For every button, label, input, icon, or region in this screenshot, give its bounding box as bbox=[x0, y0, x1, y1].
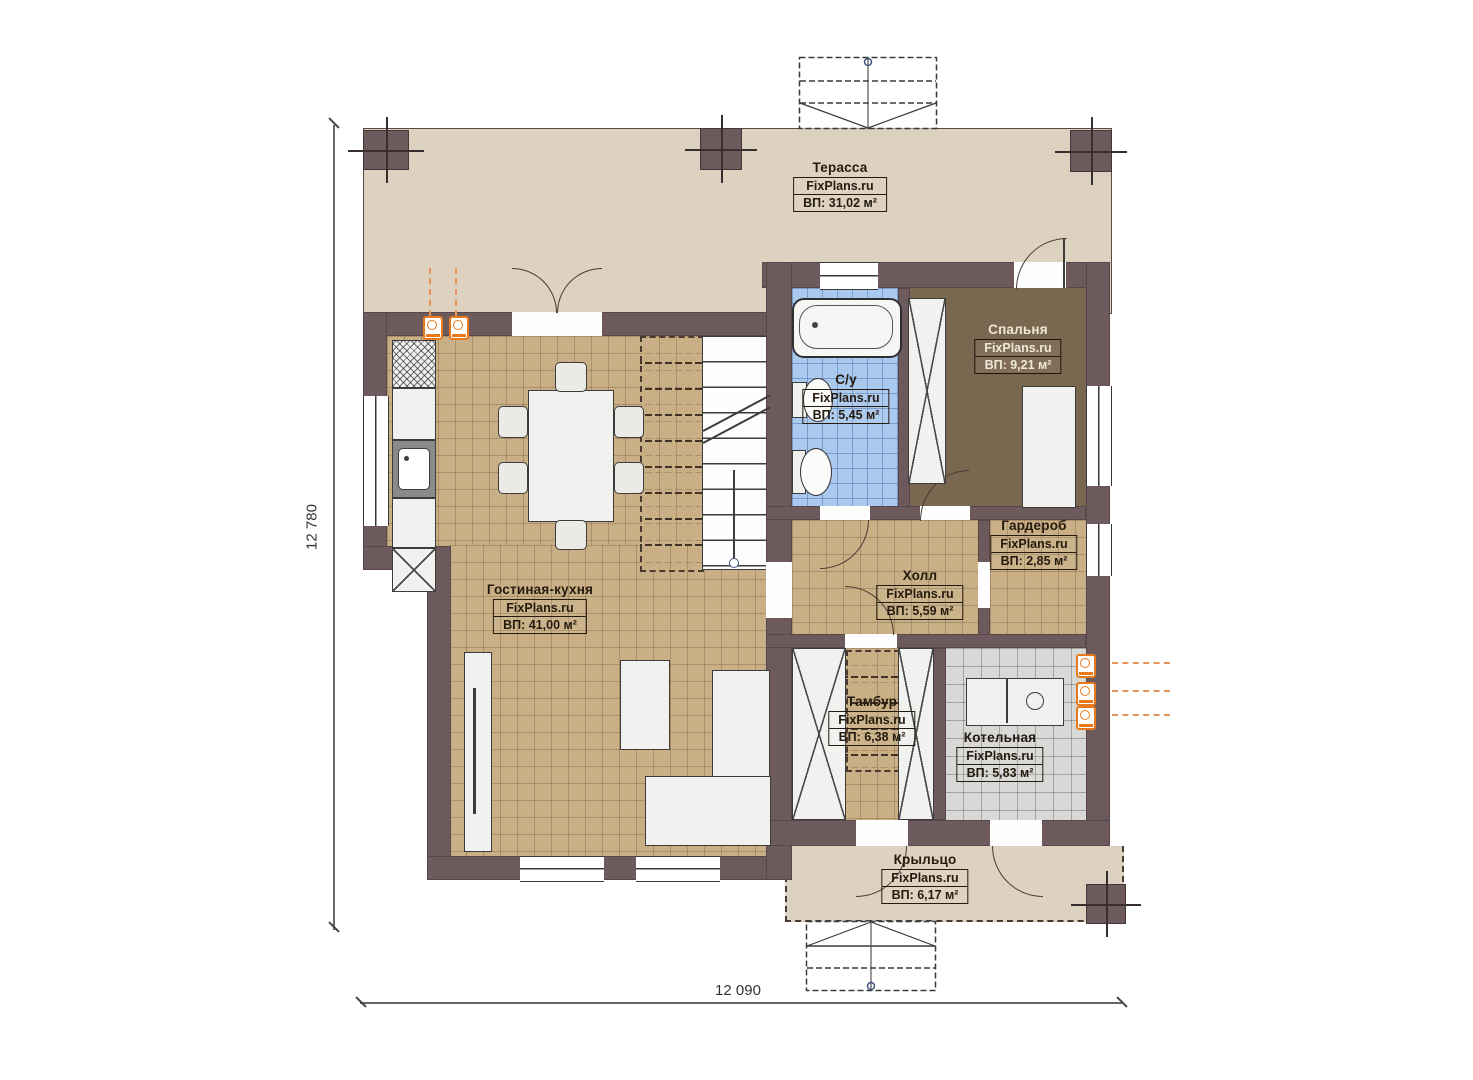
light-base bbox=[426, 334, 440, 337]
wall-vestibule-boiler bbox=[932, 648, 946, 820]
door-leaf-terrace-right bbox=[1063, 238, 1065, 288]
room-label-terrace: Терасса FixPlans.ru ВП: 31,02 м² bbox=[793, 160, 887, 212]
pipe-lead-3 bbox=[1112, 714, 1170, 716]
stair-lower-flight bbox=[702, 336, 768, 570]
pillar-axis-v bbox=[1106, 871, 1108, 937]
room-label-hall: Холл FixPlans.ru ВП: 5,59 м² bbox=[876, 568, 963, 620]
light-base bbox=[452, 334, 466, 337]
dimension-line-bottom bbox=[360, 1002, 1122, 1004]
pillar-axis-v bbox=[721, 115, 723, 183]
pillar-porch bbox=[1086, 884, 1126, 924]
room-area: ВП: 6,38 м² bbox=[829, 728, 914, 745]
window-bedroom-right bbox=[1086, 386, 1112, 486]
room-name: Терасса bbox=[793, 160, 887, 175]
room-label-porch: Крыльцо FixPlans.ru ВП: 6,17 м² bbox=[881, 852, 968, 904]
window-living-bottom-1 bbox=[520, 856, 604, 882]
boiler-divider bbox=[1006, 679, 1008, 723]
terrace-entry-stairs bbox=[798, 56, 938, 130]
window-bathroom-top bbox=[820, 262, 878, 290]
room-area: ВП: 5,59 м² bbox=[877, 602, 962, 619]
room-name: Гостиная-кухня bbox=[487, 582, 593, 597]
room-label-boiler: Котельная FixPlans.ru ВП: 5,83 м² bbox=[956, 730, 1043, 782]
bath-sink bbox=[800, 448, 832, 496]
room-name: Холл bbox=[876, 568, 963, 583]
pipe-circle-icon bbox=[1080, 658, 1090, 668]
room-name: Крыльцо bbox=[881, 852, 968, 867]
kitchen-sink bbox=[398, 448, 430, 490]
pipe-outlet-icon bbox=[1076, 654, 1096, 678]
pipe-outlet-icon bbox=[1076, 706, 1096, 730]
wall-light-icon bbox=[449, 316, 469, 340]
brand-label: FixPlans.ru bbox=[803, 390, 888, 406]
chair-top bbox=[555, 362, 587, 392]
stair-walkline bbox=[733, 470, 735, 562]
room-area: ВП: 9,21 м² bbox=[975, 356, 1060, 373]
room-name: С/у bbox=[802, 372, 889, 387]
brand-label: FixPlans.ru bbox=[882, 870, 967, 886]
light-lead-2 bbox=[455, 268, 457, 316]
room-area: ВП: 41,00 м² bbox=[494, 616, 586, 633]
pillar-axis-v bbox=[386, 117, 388, 183]
tv-screen bbox=[473, 688, 476, 814]
room-area: ВП: 2,85 м² bbox=[991, 552, 1076, 569]
brand-label: FixPlans.ru bbox=[991, 536, 1076, 552]
pipe-lead-1 bbox=[1112, 662, 1170, 664]
light-bulb-icon bbox=[453, 320, 463, 330]
stair-walkline-start bbox=[729, 558, 739, 568]
window-living-bottom-2 bbox=[636, 856, 720, 882]
kitchen-cabinet bbox=[392, 498, 436, 548]
bedroom-wardrobe bbox=[908, 298, 946, 484]
brand-label: FixPlans.ru bbox=[957, 748, 1042, 764]
brand-label: FixPlans.ru bbox=[829, 712, 914, 728]
chair-right-2 bbox=[614, 462, 644, 494]
tv-stand bbox=[464, 652, 492, 852]
pillar-top-right bbox=[1070, 130, 1112, 172]
dimension-label-left: 12 780 bbox=[304, 504, 321, 550]
door-opening-boiler-porch bbox=[990, 820, 1042, 846]
window-kitchen-left bbox=[363, 396, 389, 526]
kitchen-faucet bbox=[404, 456, 409, 461]
pillar-axis-v bbox=[1091, 117, 1093, 185]
dining-table bbox=[528, 390, 614, 522]
boiler-unit bbox=[966, 678, 1064, 726]
chair-right-1 bbox=[614, 406, 644, 438]
floor-plan: 12 780 12 090 Терасса FixPlans.ru ВП: 31… bbox=[0, 0, 1473, 1080]
chair-left-2 bbox=[498, 462, 528, 494]
pipe-outlet-icon bbox=[1076, 682, 1096, 706]
door-opening-vestibule-porch bbox=[856, 820, 908, 846]
room-area: ВП: 5,45 м² bbox=[803, 406, 888, 423]
room-label-bedroom: Спальня FixPlans.ru ВП: 9,21 м² bbox=[974, 322, 1061, 374]
window-wardrobe-right bbox=[1086, 524, 1112, 576]
porch-entry-stairs bbox=[805, 920, 937, 992]
room-name: Спальня bbox=[974, 322, 1061, 337]
pipe-circle-icon bbox=[1080, 686, 1090, 696]
brand-label: FixPlans.ru bbox=[794, 178, 886, 194]
stove bbox=[392, 340, 436, 388]
door-opening-vestibule-hall bbox=[845, 634, 897, 648]
wall-hall-bottom bbox=[766, 634, 1086, 648]
room-label-bathroom: С/у FixPlans.ru ВП: 5,45 м² bbox=[802, 372, 889, 424]
wall-light-icon bbox=[423, 316, 443, 340]
pipe-base bbox=[1079, 700, 1093, 703]
chair-left-1 bbox=[498, 406, 528, 438]
dimension-line-left bbox=[333, 125, 335, 930]
wall-left-lower bbox=[427, 546, 451, 880]
coffee-table bbox=[620, 660, 670, 750]
room-label-wardrobe: Гардероб FixPlans.ru ВП: 2,85 м² bbox=[990, 518, 1077, 570]
room-name: Тамбур bbox=[828, 694, 915, 709]
door-opening-hall-bathroom bbox=[820, 506, 870, 520]
room-area: ВП: 6,17 м² bbox=[882, 886, 967, 903]
room-area: ВП: 5,83 м² bbox=[957, 764, 1042, 781]
room-area: ВП: 31,02 м² bbox=[794, 194, 886, 211]
room-name: Гардероб bbox=[990, 518, 1077, 533]
light-bulb-icon bbox=[427, 320, 437, 330]
brand-label: FixPlans.ru bbox=[877, 586, 962, 602]
brand-label: FixPlans.ru bbox=[494, 600, 586, 616]
bedroom-dresser bbox=[1022, 386, 1076, 508]
room-label-vestibule: Тамбур FixPlans.ru ВП: 6,38 м² bbox=[828, 694, 915, 746]
light-lead-1 bbox=[429, 268, 431, 316]
pillar-top-left bbox=[363, 130, 409, 170]
dimension-label-bottom: 12 090 bbox=[715, 982, 761, 999]
wall-bottom-living bbox=[427, 856, 792, 880]
boiler-dial bbox=[1026, 692, 1044, 710]
pipe-circle-icon bbox=[1080, 710, 1090, 720]
pipe-base bbox=[1079, 672, 1093, 675]
kitchen-corner-cabinet bbox=[392, 548, 436, 592]
chair-bottom bbox=[555, 520, 587, 550]
wall-bottom-right-section bbox=[766, 820, 1110, 846]
brand-label: FixPlans.ru bbox=[975, 340, 1060, 356]
pipe-base bbox=[1079, 724, 1093, 727]
bathtub-drain bbox=[812, 322, 818, 328]
pipe-lead-2 bbox=[1112, 690, 1170, 692]
opening-hall-living bbox=[766, 562, 792, 618]
sofa-seat bbox=[645, 776, 771, 846]
oven-cabinet bbox=[392, 388, 436, 440]
door-opening-living-terrace bbox=[512, 312, 602, 336]
stair-upper-flight bbox=[640, 336, 704, 572]
room-name: Котельная bbox=[956, 730, 1043, 745]
door-opening-wardrobe bbox=[978, 562, 990, 608]
pillar-top-middle bbox=[700, 128, 742, 170]
room-label-living-kitchen: Гостиная-кухня FixPlans.ru ВП: 41,00 м² bbox=[487, 582, 593, 634]
